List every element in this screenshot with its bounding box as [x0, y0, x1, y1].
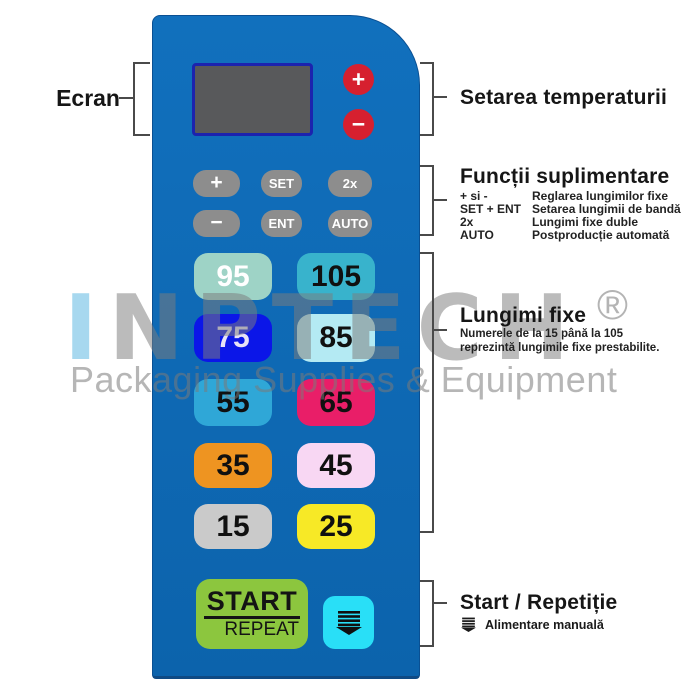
length-15-button[interactable]: 15: [194, 504, 272, 549]
length-95-button[interactable]: 95: [194, 253, 272, 300]
plus-icon: +: [352, 68, 365, 91]
temperature-bracket-stub: [434, 96, 447, 98]
screen-bracket-arm-bottom: [133, 134, 150, 136]
temperature-annotation-label: Setarea temperaturii: [460, 86, 667, 110]
keypad-panel: + − + SET 2x − ENT AUTO 95 105 75 85 55 …: [152, 15, 420, 679]
length-45-button[interactable]: 45: [297, 443, 375, 488]
temperature-bracket-arm-top: [420, 62, 434, 64]
start-annotation-title: Start / Repetiție: [460, 591, 617, 615]
length-75-button[interactable]: 75: [194, 314, 272, 362]
lengths-annotation-title: Lungimi fixe: [460, 304, 586, 328]
length-85-button[interactable]: 85: [297, 314, 375, 362]
functions-bracket-arm-bottom: [420, 234, 434, 236]
minus-icon: −: [210, 211, 222, 237]
lengths-bracket-arm-bottom: [420, 531, 434, 533]
start-label: START: [204, 587, 301, 619]
temperature-plus-button[interactable]: +: [343, 64, 374, 95]
registered-trademark-icon: ®: [597, 284, 628, 326]
length-55-button[interactable]: 55: [194, 379, 272, 426]
length-minus-button[interactable]: −: [193, 210, 240, 237]
start-bracket-arm-top: [420, 580, 434, 582]
start-repeat-button[interactable]: START REPEAT: [196, 579, 308, 649]
annotated-control-panel-diagram: + − + SET 2x − ENT AUTO 95 105 75 85 55 …: [0, 0, 700, 700]
lengths-bracket-arm-top: [420, 252, 434, 254]
double-length-button[interactable]: 2x: [328, 170, 372, 197]
functions-legend: + si -Reglarea lungimilor fixe SET + ENT…: [460, 190, 681, 242]
start-bracket-stub: [434, 602, 447, 604]
temperature-minus-button[interactable]: −: [343, 109, 374, 140]
enter-button[interactable]: ENT: [261, 210, 302, 237]
length-105-button[interactable]: 105: [297, 253, 375, 300]
start-bracket: [432, 580, 434, 647]
temperature-bracket: [432, 62, 434, 136]
temperature-bracket-arm-bottom: [420, 134, 434, 136]
legend-row: AUTOPostproducție automată: [460, 229, 681, 242]
functions-bracket-arm-top: [420, 165, 434, 167]
start-annotation-note: Alimentare manuală: [460, 617, 604, 632]
lengths-annotation-note: Numerele de la 15 până la 105 reprezintă…: [460, 327, 670, 355]
set-button[interactable]: SET: [261, 170, 302, 197]
screen-bracket-arm-top: [133, 62, 150, 64]
manual-feed-button[interactable]: [323, 596, 374, 649]
manual-feed-icon: [335, 610, 363, 636]
lengths-bracket-stub: [434, 329, 447, 331]
length-plus-button[interactable]: +: [193, 170, 240, 197]
length-65-button[interactable]: 65: [297, 379, 375, 426]
manual-feed-icon: [460, 617, 477, 632]
length-25-button[interactable]: 25: [297, 504, 375, 549]
functions-bracket-stub: [434, 199, 447, 201]
display-screen: [192, 63, 313, 136]
minus-icon: −: [352, 113, 365, 136]
screen-bracket-stub: [119, 97, 133, 99]
functions-annotation-title: Funcții suplimentare: [460, 165, 669, 189]
auto-button[interactable]: AUTO: [328, 210, 372, 237]
plus-icon: +: [210, 171, 222, 197]
repeat-label: REPEAT: [224, 620, 299, 641]
lengths-bracket: [432, 252, 434, 533]
start-bracket-arm-bottom: [420, 645, 434, 647]
length-35-button[interactable]: 35: [194, 443, 272, 488]
screen-annotation-label: Ecran: [20, 85, 120, 112]
screen-bracket: [133, 62, 135, 136]
